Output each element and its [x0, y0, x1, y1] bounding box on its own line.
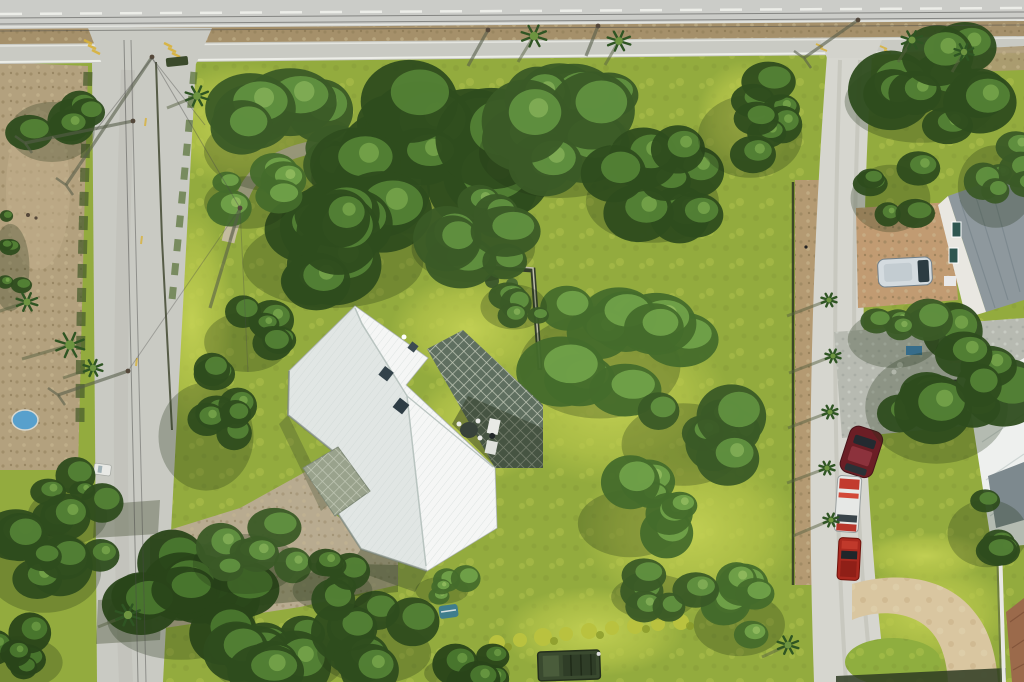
ac-unit	[944, 276, 956, 286]
white-utility-truck	[834, 475, 862, 533]
patio-table	[460, 422, 478, 438]
kayak	[438, 604, 459, 620]
aerial-photo	[0, 0, 1024, 682]
backyard-pool	[12, 410, 38, 430]
bird-on-road	[804, 245, 807, 248]
army-green-truck	[538, 650, 602, 681]
van-windshield	[917, 260, 929, 283]
vent-cap	[402, 335, 407, 340]
white-van	[877, 257, 932, 288]
small-white-car	[93, 463, 111, 476]
window	[952, 222, 961, 237]
red-pickup-truck	[837, 537, 861, 580]
window	[949, 248, 958, 263]
